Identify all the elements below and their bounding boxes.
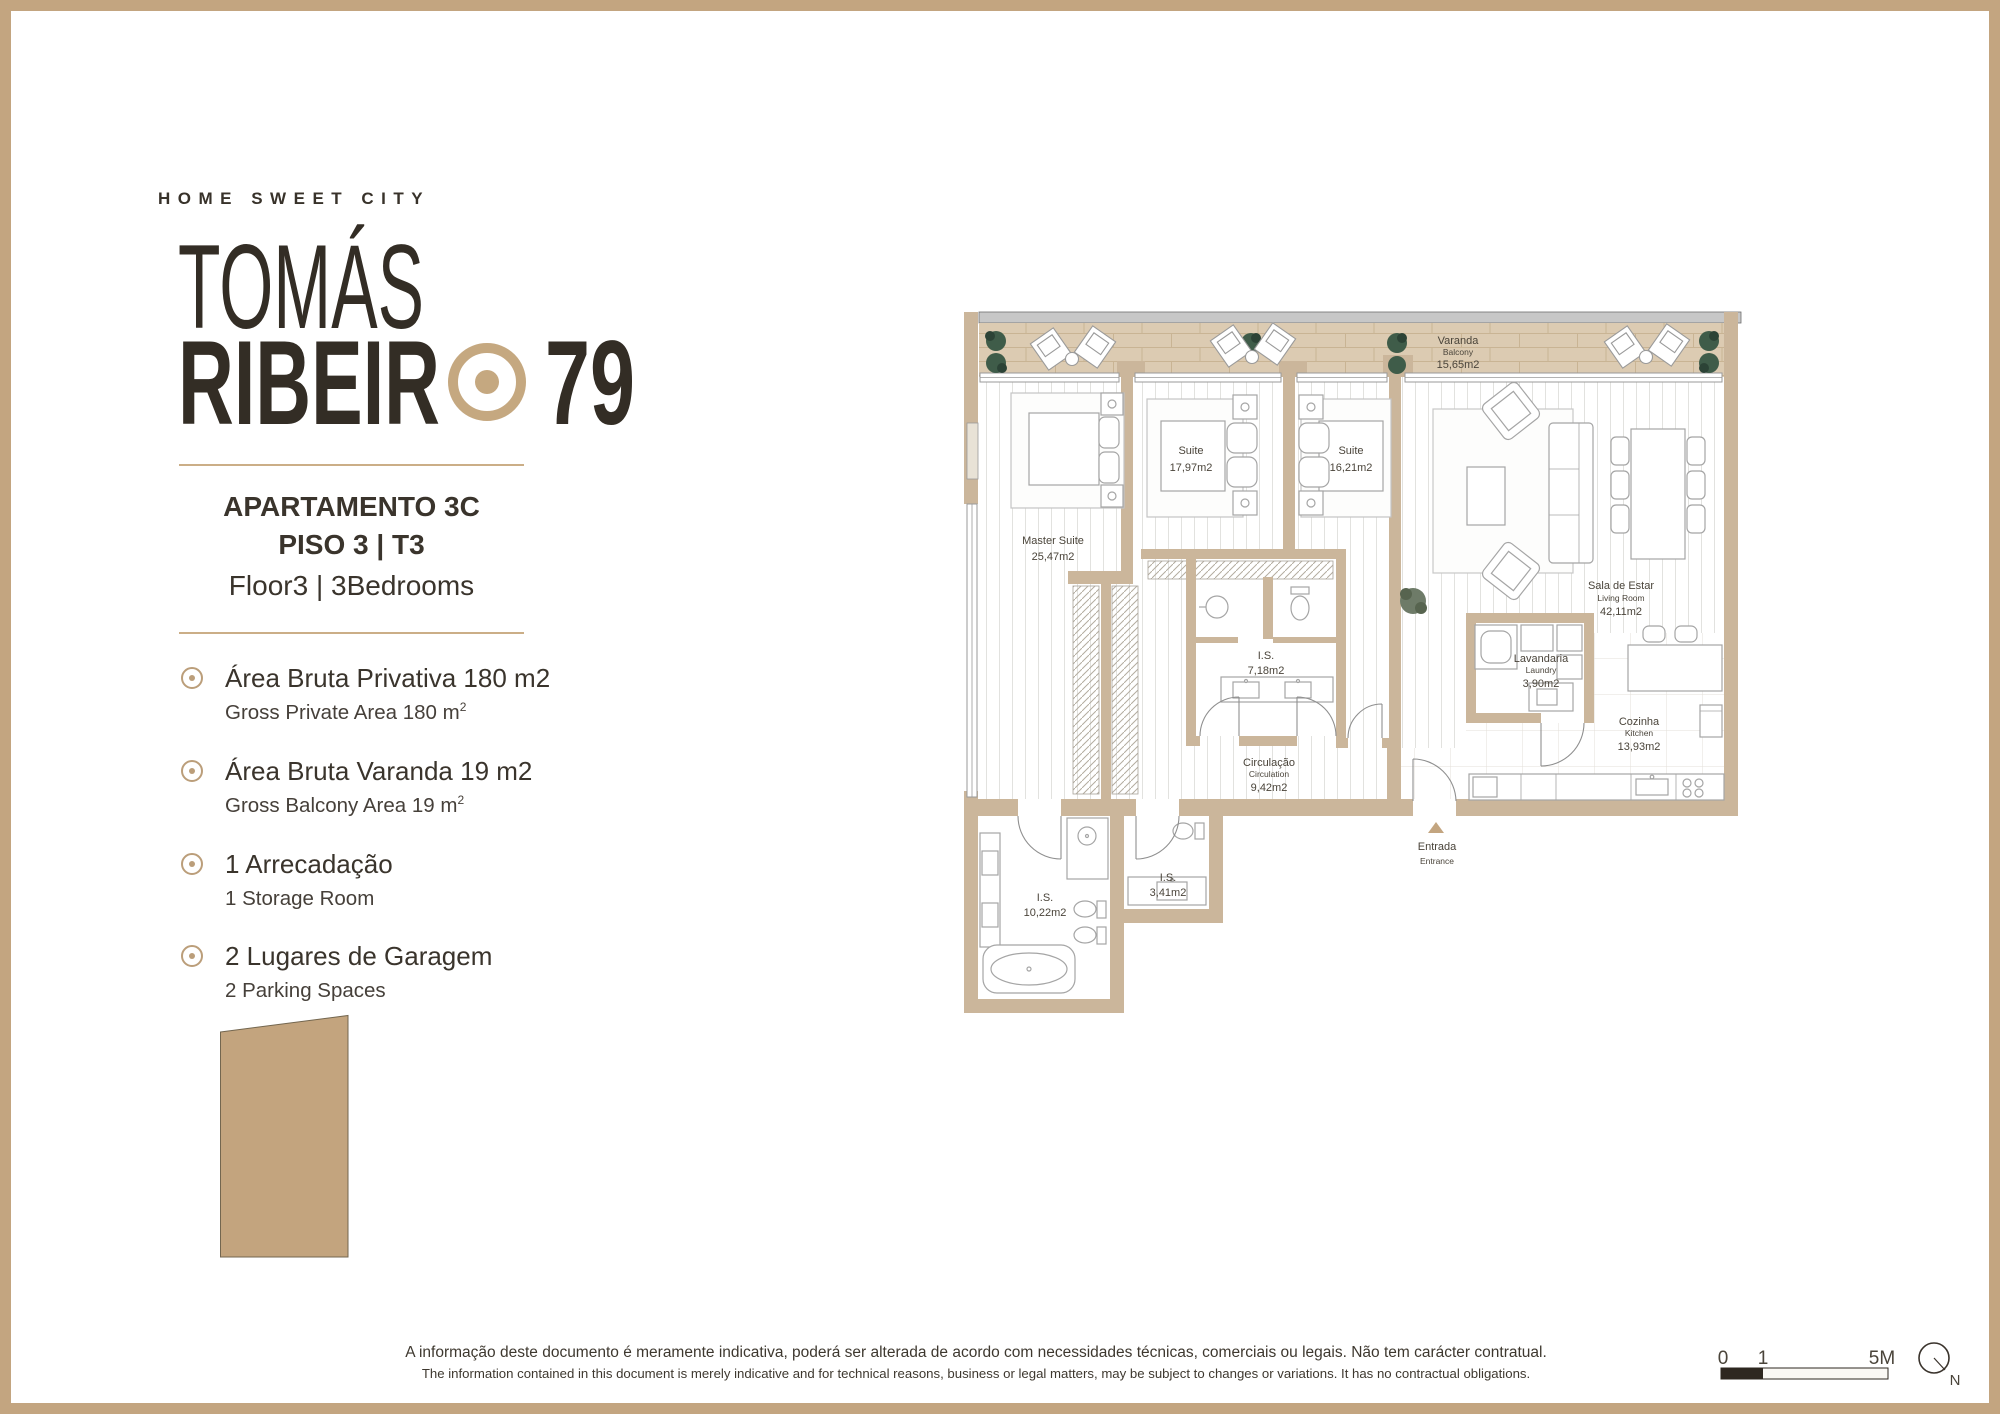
divider-top: [179, 464, 524, 466]
feature-pt: Área Bruta Privativa 180 m2: [225, 662, 659, 694]
feature-item: 2 Lugares de Garagem 2 Parking Spaces: [179, 940, 659, 1004]
apartment-title-block: APARTAMENTO 3C PISO 3 | T3 Floor3 | 3Bed…: [139, 488, 564, 605]
label-circulation: Circulação Circulation 9,42m2: [1243, 757, 1295, 794]
feature-en: Gross Balcony Area 19 m2: [225, 787, 659, 819]
scale-bar: 0 1 5M: [1718, 1348, 1895, 1379]
brochure-page: HOME SWEET CITY TOMÁS RIBEIR 79 APARTAME…: [0, 0, 2000, 1414]
disclaimer: A informação deste documento é meramente…: [351, 1344, 1601, 1381]
svg-text:Entrance: Entrance: [1420, 856, 1454, 866]
feature-item: Área Bruta Varanda 19 m2 Gross Balcony A…: [179, 755, 659, 819]
label-entrance: Entrada Entrance: [1418, 841, 1457, 866]
svg-text:Living Room: Living Room: [1597, 593, 1644, 603]
svg-text:Laundry: Laundry: [1526, 665, 1557, 675]
facade-wall: [979, 312, 1741, 323]
svg-text:16,21m2: 16,21m2: [1330, 462, 1373, 474]
svg-text:5M: 5M: [1869, 1348, 1895, 1369]
brand-tagline: HOME SWEET CITY: [158, 189, 430, 209]
disclaimer-en: The information contained in this docume…: [351, 1366, 1601, 1381]
scale-and-north: 0 1 5M N: [1711, 1341, 1973, 1403]
logo-name-bottom: RIBEIR: [178, 316, 440, 441]
feature-en: 2 Parking Spaces: [225, 972, 659, 1004]
target-bullet-icon: [181, 667, 203, 689]
svg-text:9,42m2: 9,42m2: [1251, 782, 1288, 794]
feature-pt: 2 Lugares de Garagem: [225, 940, 659, 972]
feature-pt: Área Bruta Varanda 19 m2: [225, 755, 659, 787]
svg-text:15,65m2: 15,65m2: [1437, 359, 1480, 371]
svg-text:Balcony: Balcony: [1443, 347, 1474, 357]
label-balcony: Varanda Balcony 15,65m2: [1437, 335, 1480, 371]
svg-text:Lavandaria: Lavandaria: [1514, 653, 1569, 665]
building-footprint-shape: [219, 1014, 350, 1259]
disclaimer-pt: A informação deste documento é meramente…: [351, 1344, 1601, 1362]
svg-text:Suite: Suite: [1338, 445, 1363, 457]
feature-list: Área Bruta Privativa 180 m2 Gross Privat…: [179, 662, 659, 1033]
svg-text:42,11m2: 42,11m2: [1600, 606, 1642, 618]
apartment-floor-en: Floor3 | 3Bedrooms: [139, 567, 564, 605]
svg-text:Entrada: Entrada: [1418, 841, 1457, 853]
floor-plan: Varanda Balcony 15,65m2 Suite 17,97m2 Su…: [951, 301, 1751, 1041]
svg-text:I.S.: I.S.: [1258, 650, 1275, 662]
entrance-arrow-icon: [1428, 822, 1444, 833]
svg-text:1: 1: [1758, 1348, 1769, 1369]
svg-text:Cozinha: Cozinha: [1619, 716, 1660, 728]
apartment-id: APARTAMENTO 3C: [139, 488, 564, 526]
svg-text:13,93m2: 13,93m2: [1618, 741, 1661, 753]
svg-text:3,41m2: 3,41m2: [1150, 887, 1187, 899]
svg-text:3,90m2: 3,90m2: [1523, 678, 1560, 690]
feature-item: 1 Arrecadação 1 Storage Room: [179, 848, 659, 912]
svg-text:Master Suite: Master Suite: [1022, 535, 1084, 547]
apartment-floor-pt: PISO 3 | T3: [139, 526, 564, 564]
target-bullet-icon: [181, 945, 203, 967]
svg-text:10,22m2: 10,22m2: [1024, 907, 1067, 919]
svg-text:Sala de Estar: Sala de Estar: [1588, 580, 1654, 592]
north-indicator-icon: N: [1919, 1343, 1960, 1389]
feature-item: Área Bruta Privativa 180 m2 Gross Privat…: [179, 662, 659, 726]
svg-text:Circulação: Circulação: [1243, 757, 1295, 769]
feature-pt: 1 Arrecadação: [225, 848, 659, 880]
svg-text:0: 0: [1718, 1348, 1729, 1369]
target-bullet-icon: [181, 760, 203, 782]
feature-en: Gross Private Area 180 m2: [225, 694, 659, 726]
brand-logo: TOMÁS RIBEIR 79: [151, 216, 711, 441]
svg-text:Varanda: Varanda: [1438, 335, 1480, 347]
feature-en: 1 Storage Room: [225, 880, 659, 912]
master-bed: [1011, 393, 1124, 508]
divider-bottom: [179, 632, 524, 634]
svg-text:25,47m2: 25,47m2: [1032, 551, 1075, 563]
logo-ring-icon: [453, 348, 521, 416]
svg-text:7,18m2: 7,18m2: [1248, 665, 1285, 677]
target-bullet-icon: [181, 853, 203, 875]
svg-text:I.S.: I.S.: [1160, 872, 1177, 884]
svg-text:Circulation: Circulation: [1249, 769, 1289, 779]
svg-text:I.S.: I.S.: [1037, 892, 1054, 904]
logo-number: 79: [545, 316, 635, 441]
svg-text:N: N: [1950, 1372, 1961, 1389]
svg-text:Kitchen: Kitchen: [1625, 728, 1654, 738]
svg-text:17,97m2: 17,97m2: [1170, 462, 1213, 474]
svg-text:Suite: Suite: [1178, 445, 1203, 457]
